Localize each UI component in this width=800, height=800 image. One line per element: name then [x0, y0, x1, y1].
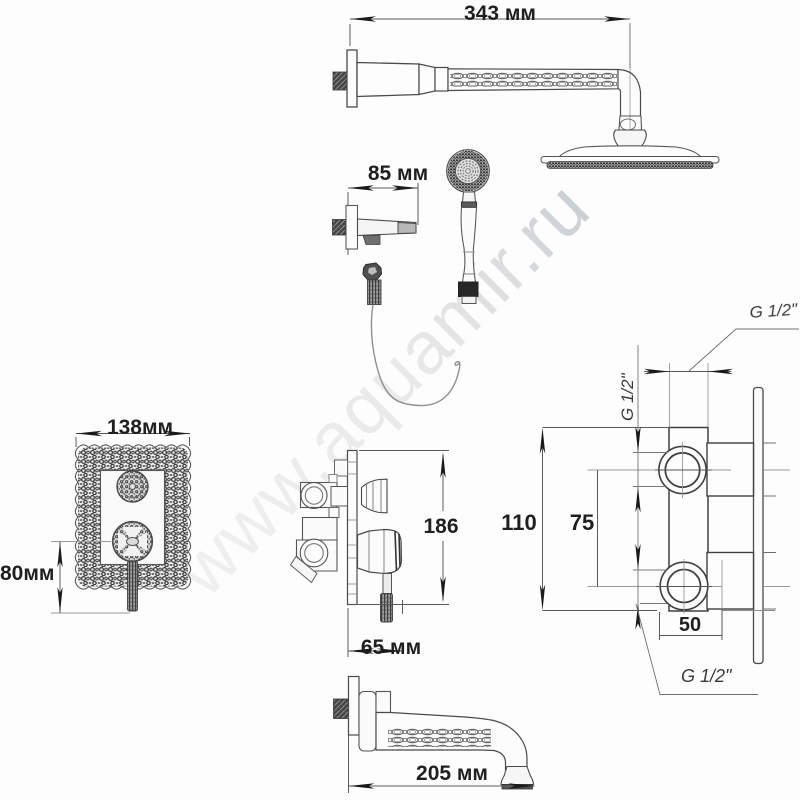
svg-text:50: 50 — [679, 614, 701, 636]
svg-text:343 мм: 343 мм — [464, 2, 536, 25]
svg-text:186: 186 — [423, 515, 458, 538]
svg-text:138мм: 138мм — [107, 416, 173, 439]
svg-text:75: 75 — [570, 510, 594, 535]
svg-text:G 1/2": G 1/2" — [749, 300, 799, 322]
svg-text:80мм: 80мм — [0, 562, 54, 585]
svg-text:G 1/2": G 1/2" — [618, 372, 637, 421]
svg-text:G 1/2": G 1/2" — [681, 666, 733, 686]
svg-text:65 мм: 65 мм — [361, 636, 421, 659]
svg-text:205 мм: 205 мм — [416, 762, 488, 785]
svg-text:110: 110 — [501, 510, 537, 535]
svg-text:85 мм: 85 мм — [368, 162, 428, 185]
